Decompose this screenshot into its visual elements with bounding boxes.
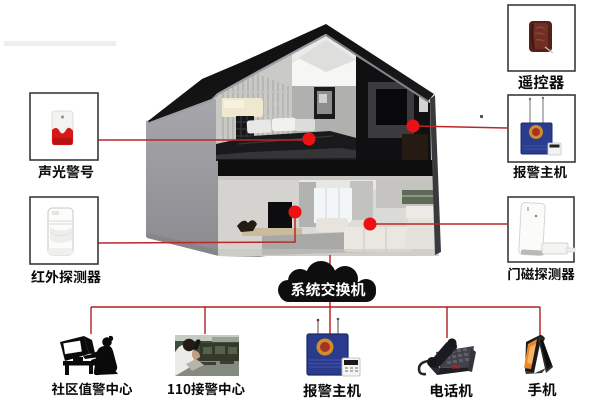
svg-text:社区值警中心: 社区值警中心 xyxy=(52,378,133,398)
svg-text:电话机: 电话机 xyxy=(429,380,473,400)
svg-text:系统交换机: 系统交换机 xyxy=(290,279,365,300)
svg-text:手机: 手机 xyxy=(528,379,557,400)
svg-text:门磁探测器: 门磁探测器 xyxy=(507,263,575,283)
svg-text:红外探测器: 红外探测器 xyxy=(31,267,101,287)
svg-text:报警主机: 报警主机 xyxy=(513,161,567,181)
svg-text:报警主机: 报警主机 xyxy=(303,380,361,400)
svg-text:遥控器: 遥控器 xyxy=(518,71,565,93)
svg-text:110接警中心: 110接警中心 xyxy=(167,378,245,398)
svg-text:声光警号: 声光警号 xyxy=(38,162,94,182)
